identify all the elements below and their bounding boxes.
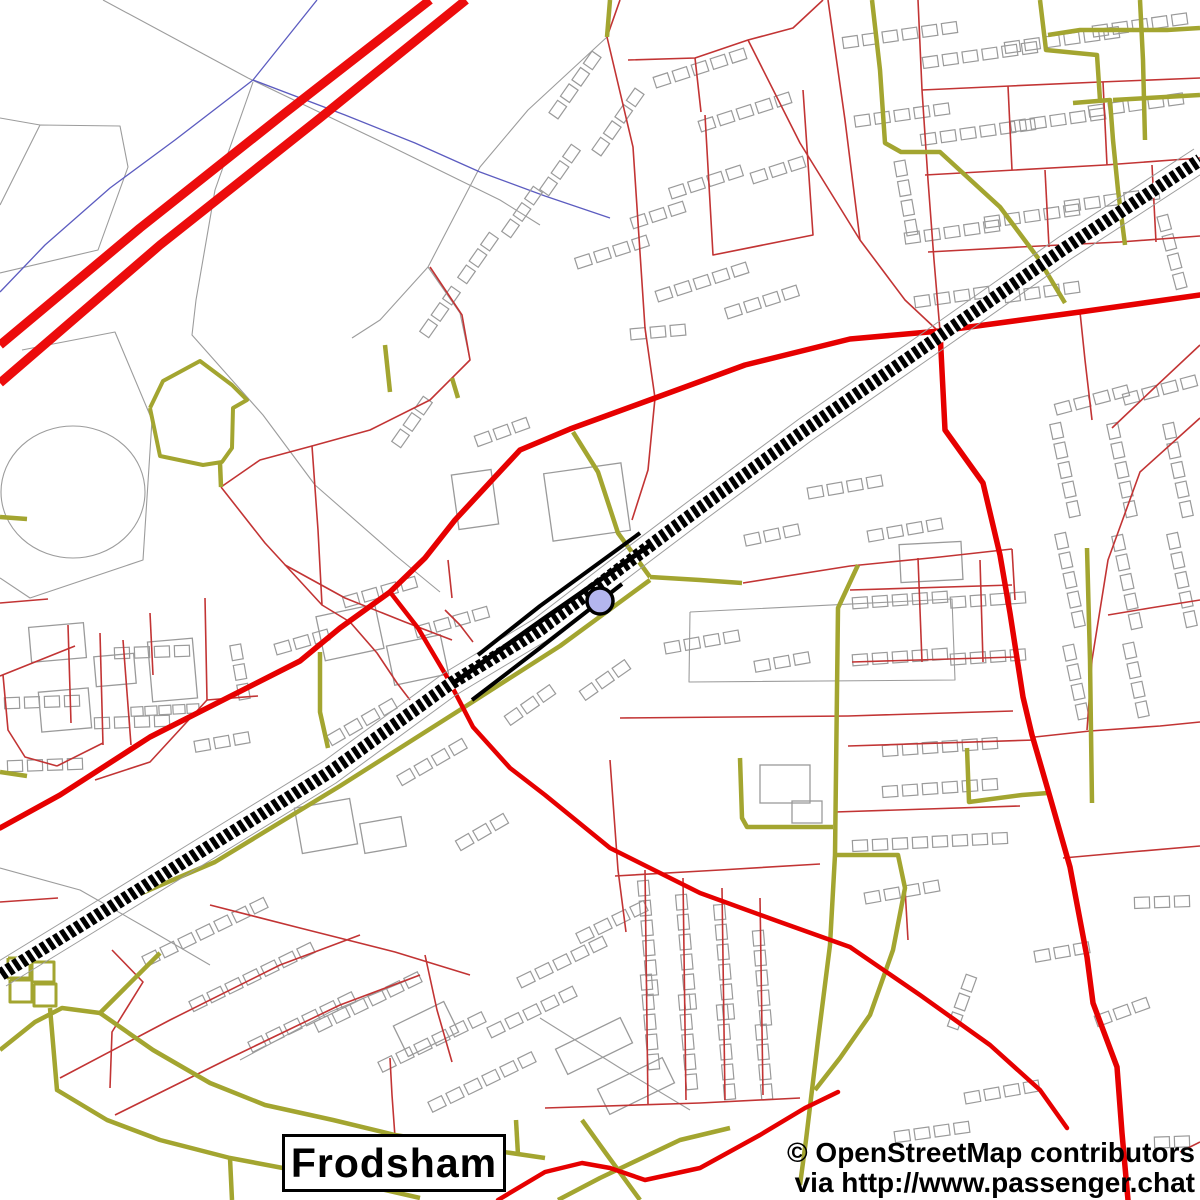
motorway-layer (0, 0, 466, 383)
map-canvas[interactable] (0, 0, 1200, 1200)
railway-layer (0, 149, 1200, 986)
attribution-line2: via http://www.passenger.chat (787, 1168, 1195, 1198)
map-attribution: © OpenStreetMap contributors via http://… (787, 1138, 1195, 1198)
place-label-text: Frodsham (291, 1140, 497, 1187)
attribution-line1: © OpenStreetMap contributors (787, 1138, 1195, 1168)
station-marker[interactable] (587, 588, 613, 614)
place-label: Frodsham (282, 1134, 506, 1192)
field-boundaries-layer (0, 0, 955, 1110)
streams-layer (0, 0, 610, 292)
map-viewport[interactable]: Frodsham © OpenStreetMap contributors vi… (0, 0, 1200, 1200)
park-layer (1, 426, 145, 558)
